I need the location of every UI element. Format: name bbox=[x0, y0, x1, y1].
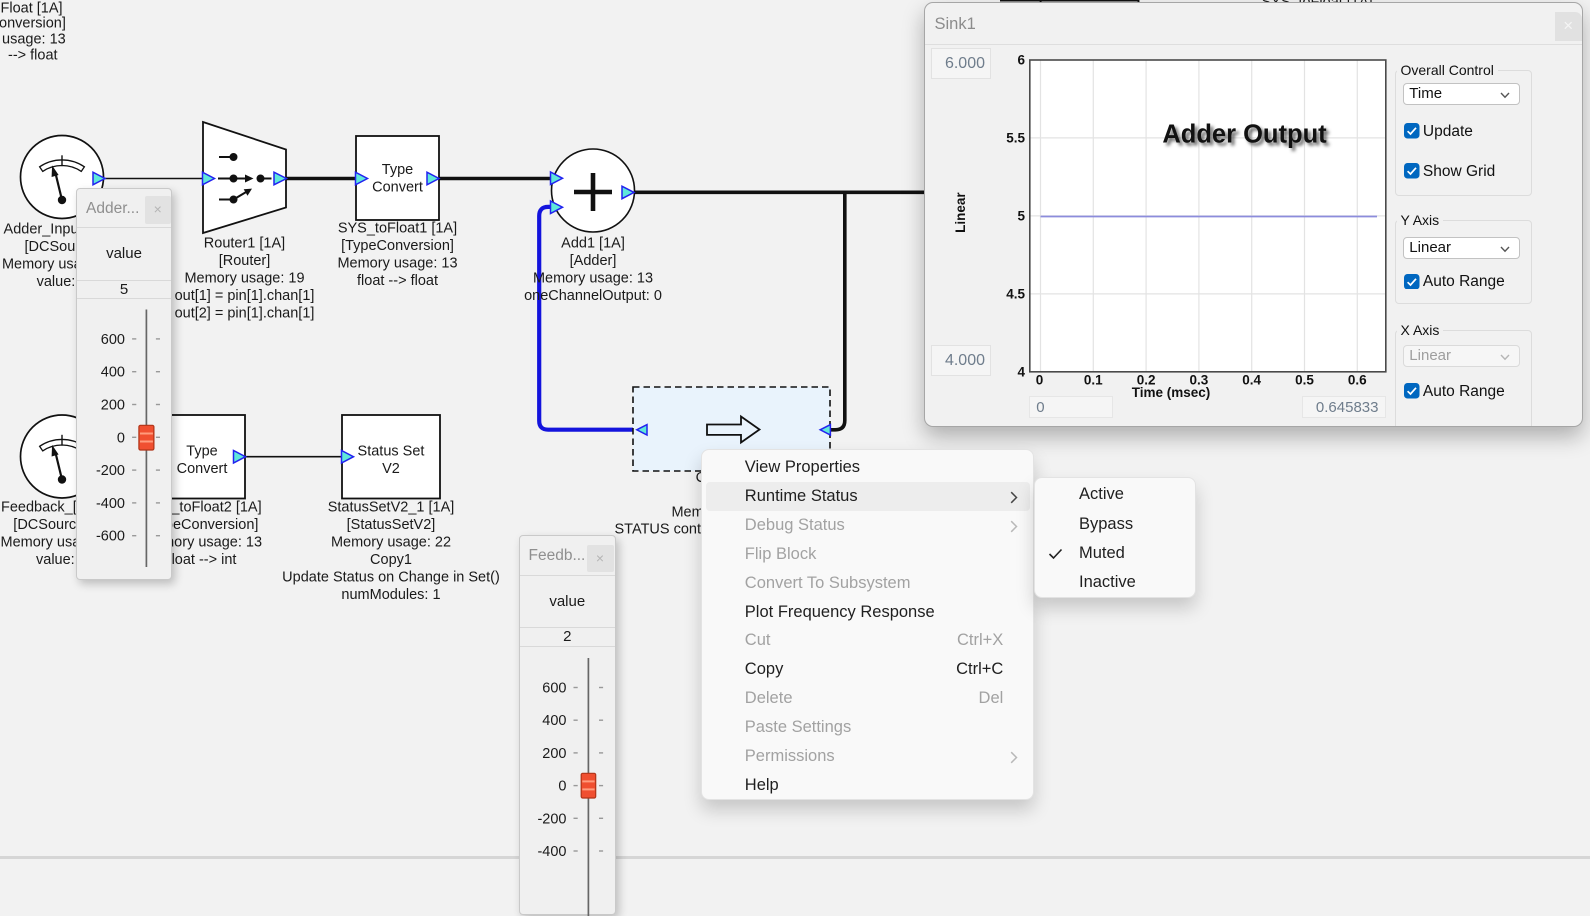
svg-text:out[2] = pin[1].chan[1]: out[2] = pin[1].chan[1] bbox=[175, 306, 315, 322]
svg-text:Memory usage: 13: Memory usage: 13 bbox=[337, 256, 457, 272]
svg-text:4.5: 4.5 bbox=[1006, 286, 1025, 301]
svg-text:200: 200 bbox=[101, 398, 125, 414]
svg-text:0.1: 0.1 bbox=[1083, 372, 1102, 387]
svg-text:0: 0 bbox=[558, 778, 566, 794]
svg-text:onversion]: onversion] bbox=[0, 16, 66, 32]
svg-text:400: 400 bbox=[101, 365, 125, 381]
svg-text:Convert: Convert bbox=[177, 461, 228, 477]
svg-text:StatusSetV2_1 [1A]: StatusSetV2_1 [1A] bbox=[328, 500, 455, 516]
svg-text:-400: -400 bbox=[96, 496, 125, 512]
svg-text:0.4: 0.4 bbox=[1242, 372, 1261, 387]
svg-text:[StatusSetV2]: [StatusSetV2] bbox=[347, 517, 436, 533]
svg-text:Copy1: Copy1 bbox=[370, 552, 412, 568]
svg-text:0.5: 0.5 bbox=[1295, 372, 1314, 387]
svg-text:Router1 [1A]: Router1 [1A] bbox=[204, 236, 285, 252]
svg-text:Float [1A]: Float [1A] bbox=[1, 1, 63, 17]
svg-text:Type: Type bbox=[186, 444, 217, 460]
svg-text:numModules: 1: numModules: 1 bbox=[341, 587, 440, 603]
svg-text:float --> float: float --> float bbox=[357, 273, 438, 289]
svg-text:600: 600 bbox=[101, 332, 125, 348]
svg-text:4: 4 bbox=[1017, 364, 1025, 379]
svg-text:-400: -400 bbox=[537, 844, 566, 860]
svg-text:usage: 13: usage: 13 bbox=[2, 32, 66, 48]
svg-text:Type: Type bbox=[382, 162, 413, 178]
svg-text:-600: -600 bbox=[96, 529, 125, 545]
svg-text:SYS_toFloat1 [1A]: SYS_toFloat1 [1A] bbox=[338, 221, 457, 237]
svg-text:Memory usage: 22: Memory usage: 22 bbox=[331, 535, 451, 551]
svg-text:Adder Output: Adder Output bbox=[1162, 120, 1327, 148]
svg-text:Memory usage: 19: Memory usage: 19 bbox=[184, 271, 304, 287]
svg-text:Status Set: Status Set bbox=[358, 444, 425, 460]
svg-text:0: 0 bbox=[1035, 372, 1043, 387]
svg-text:oneChannelOutput: 0: oneChannelOutput: 0 bbox=[524, 288, 662, 304]
svg-text:6: 6 bbox=[1017, 52, 1025, 67]
svg-text:-200: -200 bbox=[96, 463, 125, 479]
svg-text:400: 400 bbox=[542, 713, 566, 729]
svg-text:Memory usage: 13: Memory usage: 13 bbox=[533, 271, 653, 287]
svg-text:5.5: 5.5 bbox=[1006, 130, 1025, 145]
svg-text:[TypeConversion]: [TypeConversion] bbox=[341, 238, 454, 254]
svg-text:-200: -200 bbox=[537, 811, 566, 827]
svg-text:Add1 [1A]: Add1 [1A] bbox=[561, 236, 625, 252]
svg-text:[Router]: [Router] bbox=[219, 253, 271, 269]
svg-text:0: 0 bbox=[117, 430, 125, 446]
svg-text:200: 200 bbox=[542, 745, 566, 761]
svg-text:600: 600 bbox=[542, 680, 566, 696]
svg-text:Linear: Linear bbox=[953, 191, 968, 232]
svg-text:out[1] = pin[1].chan[1]: out[1] = pin[1].chan[1] bbox=[175, 288, 315, 304]
svg-text:Time (msec): Time (msec) bbox=[1131, 384, 1210, 399]
svg-text:--> float: --> float bbox=[8, 48, 58, 64]
svg-text:float --> int: float --> int bbox=[168, 552, 237, 568]
svg-text:Update Status on Change in Set: Update Status on Change in Set() bbox=[282, 570, 500, 586]
svg-text:5: 5 bbox=[1017, 208, 1025, 223]
svg-text:V2: V2 bbox=[382, 461, 400, 477]
svg-text:Convert: Convert bbox=[372, 180, 423, 196]
svg-text:0.6: 0.6 bbox=[1347, 372, 1366, 387]
svg-text:[Adder]: [Adder] bbox=[570, 253, 617, 269]
